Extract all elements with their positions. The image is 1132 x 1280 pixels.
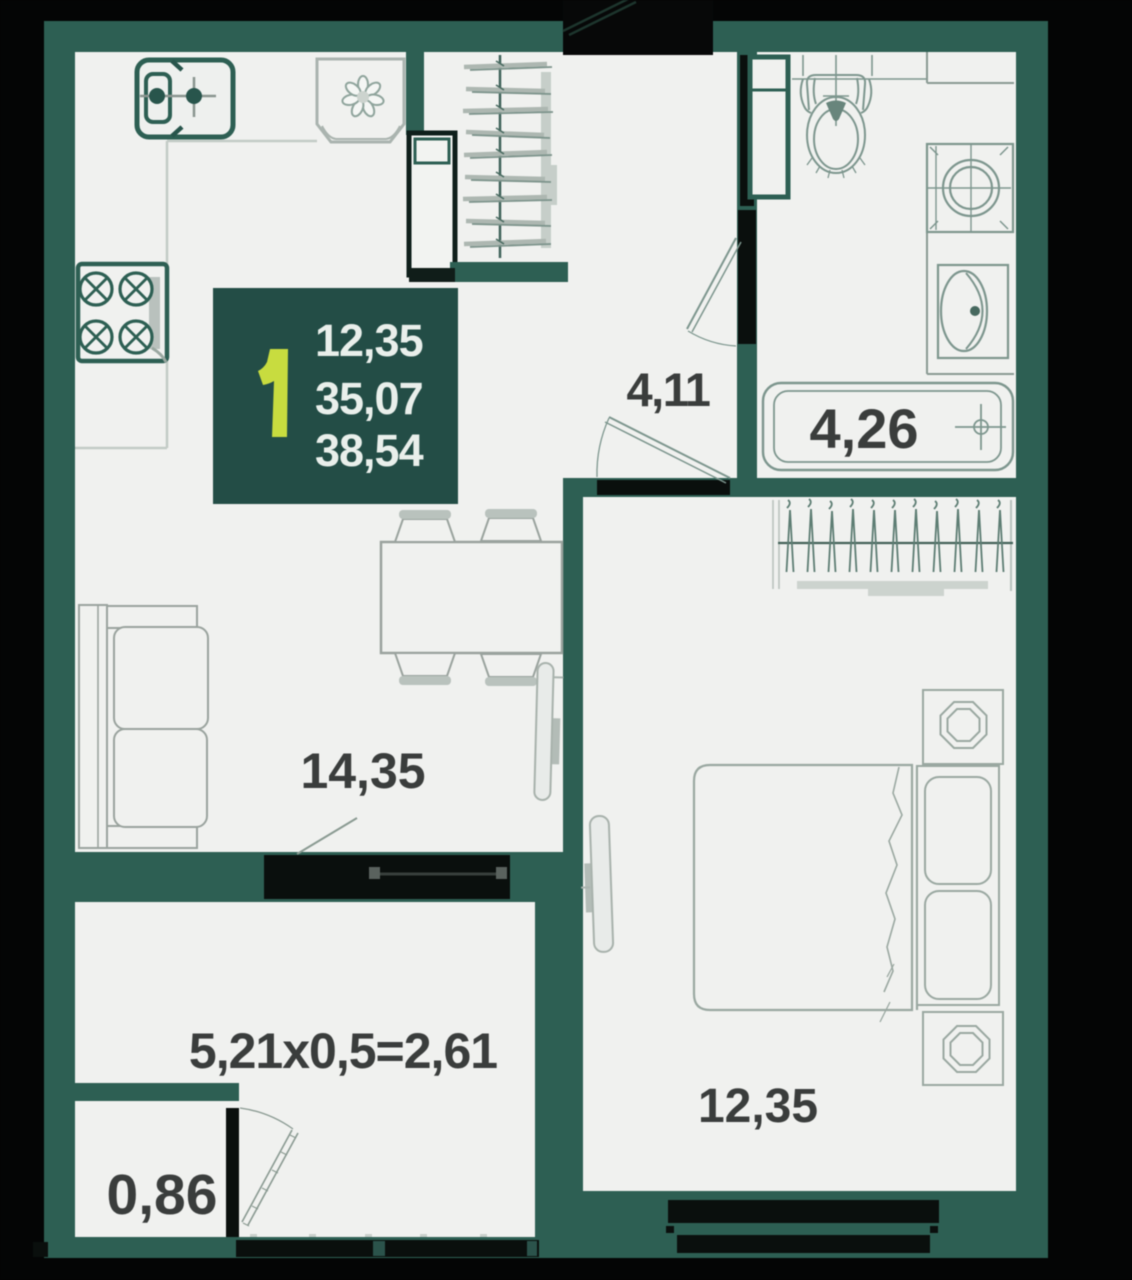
svg-text:4,26: 4,26 xyxy=(810,397,919,460)
svg-text:14,35: 14,35 xyxy=(300,743,425,799)
svg-text:4,11: 4,11 xyxy=(627,363,710,416)
svg-text:12,35: 12,35 xyxy=(698,1080,818,1133)
svg-text:38,54: 38,54 xyxy=(315,425,424,476)
svg-text:5,21x0,5=2,61: 5,21x0,5=2,61 xyxy=(189,1023,497,1079)
svg-text:35,07: 35,07 xyxy=(315,373,423,424)
svg-text:0,86: 0,86 xyxy=(107,1163,218,1227)
svg-text:12,35: 12,35 xyxy=(315,315,423,366)
